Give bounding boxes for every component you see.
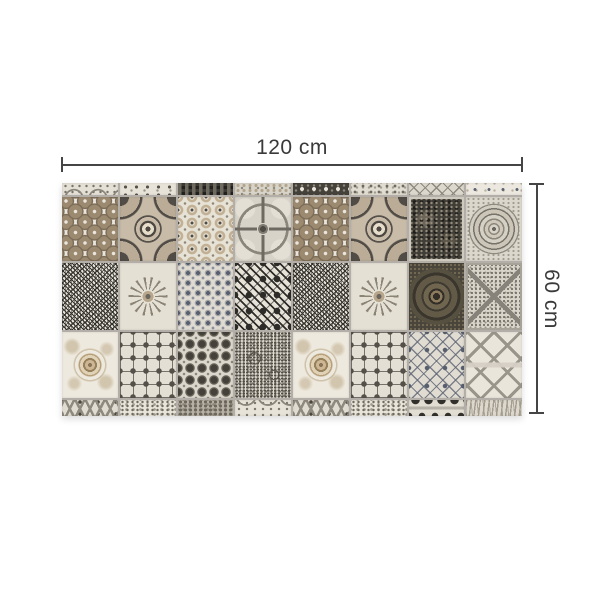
tile-cross-floral-dark	[178, 332, 234, 398]
tile-grain	[466, 400, 522, 416]
tile-garland	[62, 183, 118, 195]
tile-scribble-maze	[62, 263, 118, 330]
tile-baroque-scroll	[62, 332, 118, 398]
tile-dark-rosette	[409, 263, 465, 330]
tile-mottle	[235, 183, 291, 195]
tile-ornate	[351, 183, 407, 195]
tile-dark-baroque	[409, 197, 465, 261]
tile-arcs	[235, 400, 291, 416]
tile-speckle-light	[351, 400, 407, 416]
tile-scribble-maze	[293, 263, 349, 330]
tile-damask-lattice	[409, 332, 465, 398]
height-dimension-label: 60 cm	[539, 269, 563, 329]
tile-paisley-speckle	[235, 332, 291, 398]
tile-damask-small	[178, 263, 234, 330]
tile-compass-circle	[235, 197, 291, 261]
tile-baroque-scroll	[293, 332, 349, 398]
tile-square-frames	[120, 332, 176, 398]
tile-row-full	[62, 332, 522, 398]
tile-concave-square	[120, 197, 176, 261]
tile-arrow-hatch	[235, 263, 291, 330]
tile-floral-swirl	[351, 263, 407, 330]
tile-row-partial-bottom	[62, 400, 522, 416]
tile-chevron	[62, 400, 118, 416]
tile-row-full	[62, 197, 522, 261]
width-dimension-line	[62, 164, 522, 166]
tile-floral-swirl	[120, 263, 176, 330]
tile-speckle-light	[120, 400, 176, 416]
height-dimension-line	[536, 184, 538, 413]
tile-darkflower	[293, 183, 349, 195]
tile-row-full	[62, 263, 522, 330]
tile-concave-square	[351, 197, 407, 261]
width-dimension-tick-left	[61, 157, 63, 172]
tile-cream	[466, 183, 522, 195]
tile-chevron	[293, 400, 349, 416]
tile-penny-medallions	[62, 197, 118, 261]
tile-speckle-cross	[466, 263, 522, 330]
width-dimension-tick-right	[521, 157, 523, 172]
width-dimension-label: 120 cm	[62, 136, 522, 160]
tile-quatrefoil-trellis	[466, 332, 522, 398]
height-dimension-tick-top	[529, 183, 544, 185]
tile-checker	[178, 183, 234, 195]
tile-floral-lattice	[178, 197, 234, 261]
tile-lattice	[409, 183, 465, 195]
product-dimension-diagram: 120 cm 60 cm	[0, 0, 600, 600]
tile-penny-medallions	[293, 197, 349, 261]
tile-panel	[62, 183, 522, 416]
tile-square-frames	[351, 332, 407, 398]
tile-mottle-dark	[178, 400, 234, 416]
tile-sprigs	[120, 183, 176, 195]
tile-crowns	[409, 400, 465, 416]
tile-row-partial-top	[62, 183, 522, 195]
height-dimension-tick-bottom	[529, 412, 544, 414]
tile-plate-medallion	[466, 197, 522, 261]
